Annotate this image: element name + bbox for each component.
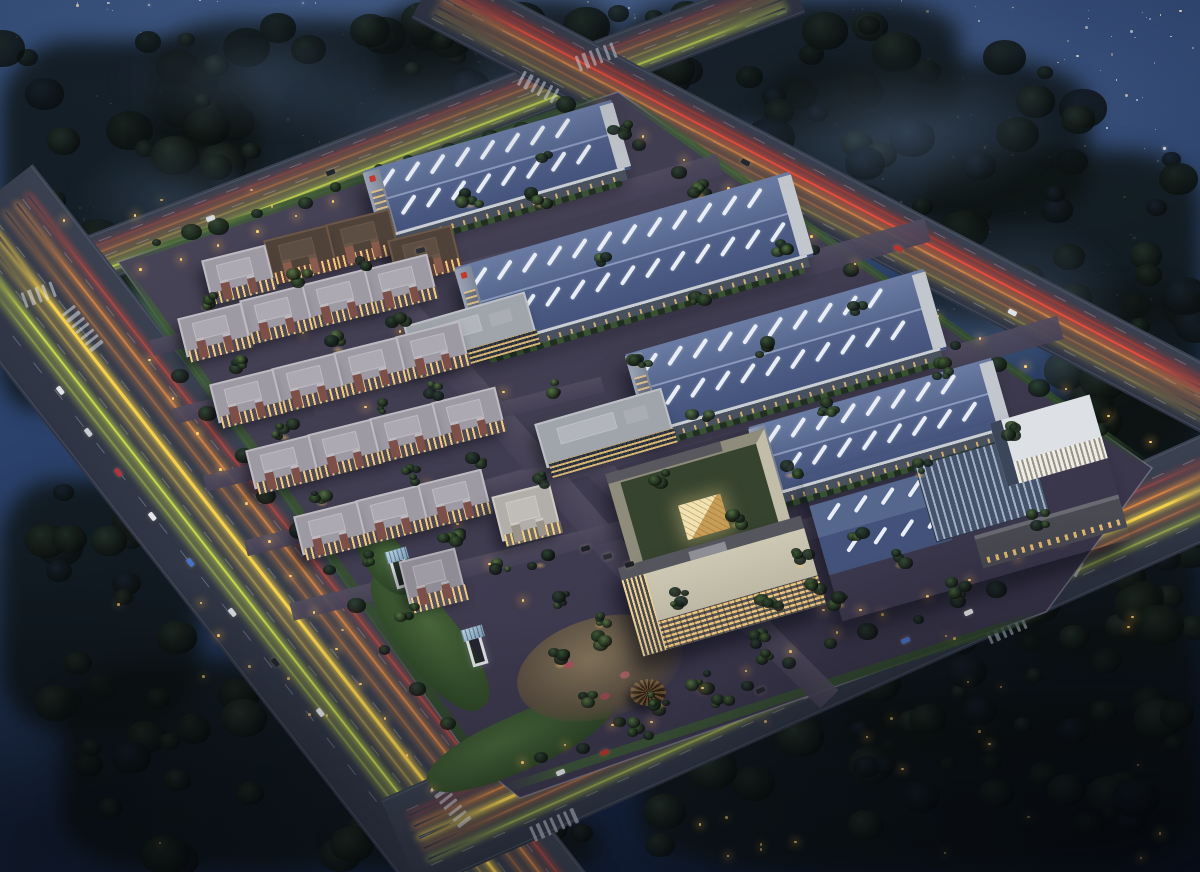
tree <box>360 261 371 270</box>
tree <box>912 458 924 468</box>
tree <box>726 509 739 520</box>
street-lamp <box>521 761 524 764</box>
tree <box>432 391 444 401</box>
street-lamp <box>219 468 222 471</box>
tree <box>550 379 559 386</box>
courtyard-pyramid-skylight <box>677 493 729 540</box>
tree <box>648 475 662 486</box>
tree <box>1028 379 1049 397</box>
tree <box>627 728 638 737</box>
tree <box>347 598 365 613</box>
tree-light-glow <box>332 346 344 353</box>
tree <box>409 603 419 612</box>
tree <box>271 431 280 438</box>
tree <box>598 635 612 647</box>
street-lamp <box>172 397 175 400</box>
street-lamp <box>202 675 205 678</box>
tree <box>539 480 550 489</box>
street-lamp <box>256 230 259 233</box>
tree <box>613 717 625 727</box>
tree <box>831 591 846 603</box>
tree <box>1041 521 1050 528</box>
tree <box>600 252 612 262</box>
tree <box>806 582 818 592</box>
street-lamp <box>881 613 884 616</box>
tree <box>891 549 900 557</box>
street-lamp <box>1159 832 1162 835</box>
tree <box>437 533 450 544</box>
tree <box>898 557 913 569</box>
tree <box>286 418 300 430</box>
tree <box>697 185 705 191</box>
street-lamp <box>250 189 253 192</box>
street-lamp <box>789 650 792 653</box>
street-lamp <box>1149 441 1152 444</box>
tree <box>323 565 336 576</box>
aerial-night-rendering <box>0 0 1200 872</box>
street-lamp <box>810 235 813 238</box>
tree <box>857 623 878 640</box>
tree <box>379 645 391 655</box>
street-lamp <box>313 611 316 614</box>
tree <box>662 700 670 706</box>
tree <box>409 682 425 695</box>
tree <box>792 550 803 559</box>
street-lamp <box>196 432 199 435</box>
tree <box>198 406 217 421</box>
tree <box>696 679 704 685</box>
tree <box>670 601 677 607</box>
tree <box>802 549 815 560</box>
tree <box>302 269 313 278</box>
tree <box>792 470 803 479</box>
tree <box>627 717 641 728</box>
tree <box>685 409 698 420</box>
street-lamp <box>764 720 767 723</box>
tree <box>236 356 247 365</box>
street-lamp <box>1024 365 1027 368</box>
tree <box>918 468 925 474</box>
tree <box>623 120 633 129</box>
tree <box>366 558 376 566</box>
tree <box>855 527 870 539</box>
tree <box>208 292 218 300</box>
roof-structure <box>488 308 513 327</box>
tree <box>394 612 407 622</box>
street-lamp <box>326 714 329 717</box>
tree <box>552 591 566 603</box>
tree <box>1001 429 1016 441</box>
street-lamp <box>117 603 120 606</box>
street-lamp <box>268 540 271 543</box>
street-lamp <box>332 200 335 203</box>
tree <box>536 153 548 163</box>
tree <box>711 694 724 704</box>
tree <box>632 139 646 150</box>
tree <box>755 351 763 358</box>
tree <box>773 601 784 610</box>
tree <box>913 615 924 624</box>
tree <box>465 452 479 464</box>
tree <box>661 469 670 477</box>
tree <box>681 590 688 596</box>
street-lamp <box>1027 816 1030 819</box>
street-lamp <box>725 816 728 819</box>
street-lamp <box>139 268 142 271</box>
street-lamp <box>63 219 66 222</box>
street-lamp <box>248 665 251 668</box>
skylight-strip <box>854 494 869 513</box>
tree <box>647 692 655 698</box>
tree <box>950 341 961 350</box>
flower-bed <box>599 692 611 701</box>
tree <box>171 369 189 384</box>
tree <box>602 619 612 628</box>
tree <box>703 410 715 420</box>
tree <box>527 562 537 570</box>
tree <box>576 743 590 754</box>
tree <box>697 294 712 306</box>
street-lamp <box>308 713 311 716</box>
roof-structure <box>556 412 617 445</box>
street-lamp <box>642 135 645 138</box>
tree <box>412 466 421 473</box>
street-lamp <box>245 502 248 505</box>
tree <box>824 638 837 649</box>
tree <box>275 423 284 430</box>
tree <box>643 731 654 740</box>
tree <box>181 224 201 241</box>
tree <box>1040 509 1050 517</box>
tree <box>759 633 771 643</box>
skylight-strip <box>873 526 888 545</box>
street-lamp <box>890 717 893 720</box>
tree <box>474 200 484 208</box>
tree <box>843 263 859 276</box>
street-lamp <box>287 677 290 680</box>
tree <box>286 268 300 280</box>
tree <box>649 700 657 706</box>
skylight-strip <box>827 502 842 521</box>
skylight-strip <box>900 519 915 538</box>
roof-structure <box>623 405 649 425</box>
tree <box>723 695 736 705</box>
street-lamp <box>364 406 367 409</box>
tree <box>760 336 775 348</box>
tree <box>489 563 503 574</box>
street-lamp <box>271 205 274 208</box>
flower-bed <box>619 670 631 679</box>
tree <box>330 182 341 191</box>
skylight-strip <box>880 487 895 506</box>
tree <box>556 649 570 661</box>
tree <box>251 209 262 218</box>
street-lamp <box>406 754 409 757</box>
tree <box>324 335 339 347</box>
street-lamp <box>953 637 956 640</box>
tree <box>596 612 605 620</box>
tree <box>945 577 958 587</box>
tree <box>1026 509 1039 519</box>
tree <box>781 245 792 254</box>
tree <box>671 166 686 179</box>
tree <box>932 372 941 380</box>
ribbed-facade <box>1013 437 1108 484</box>
tree <box>986 581 1007 598</box>
tree <box>741 681 753 691</box>
tree <box>780 460 794 471</box>
street-lamp <box>180 258 183 261</box>
